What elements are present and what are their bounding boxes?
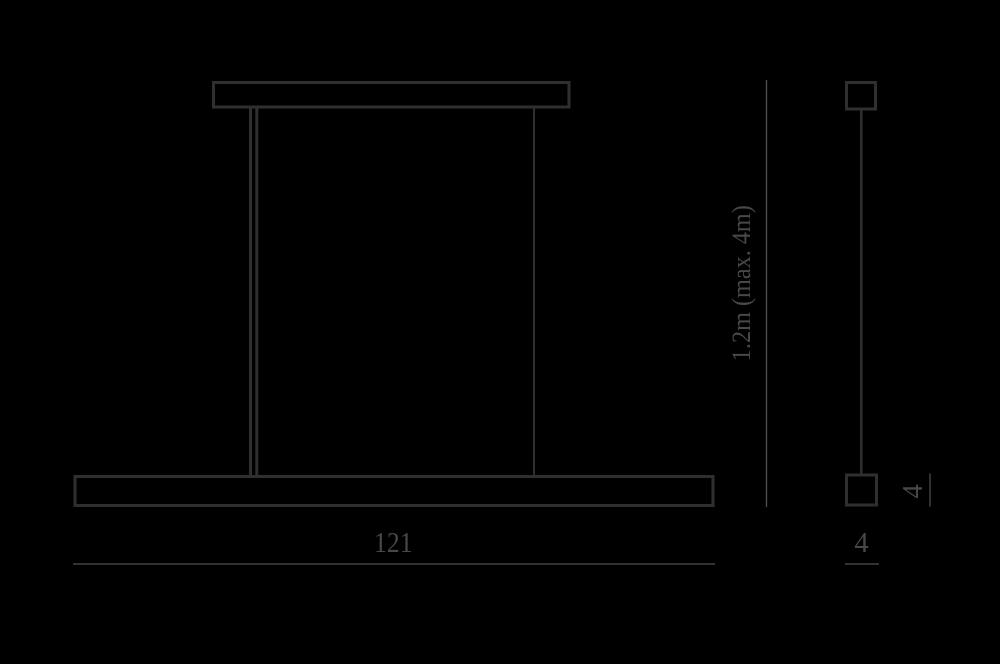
svg-text:4: 4 xyxy=(898,484,929,498)
svg-text:1.2m (max. 4m): 1.2m (max. 4m) xyxy=(727,205,756,361)
svg-text:4: 4 xyxy=(854,528,868,559)
svg-text:121: 121 xyxy=(374,528,413,559)
